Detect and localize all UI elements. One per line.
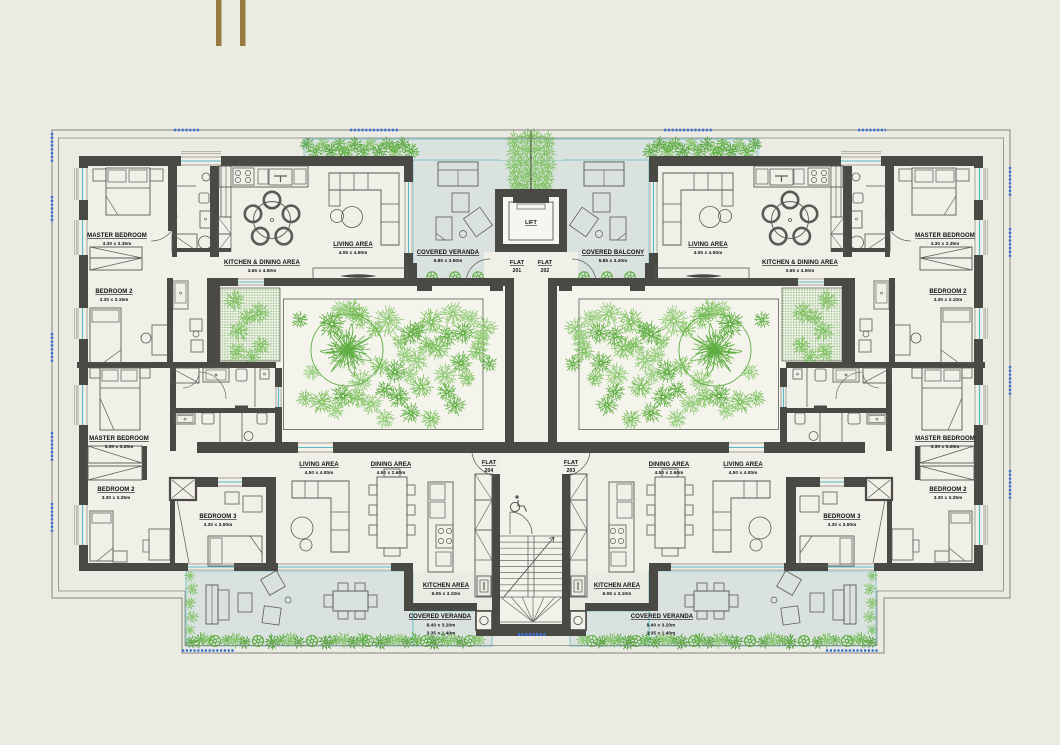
svg-text:3.30 x 3.35m: 3.30 x 3.35m bbox=[931, 241, 960, 246]
svg-text:FLAT: FLAT bbox=[538, 260, 553, 266]
svg-text:LIVING AREA: LIVING AREA bbox=[299, 462, 339, 468]
svg-text:4.50 x 4.00m: 4.50 x 4.00m bbox=[305, 470, 334, 475]
svg-text:3.30 x 3.20m: 3.30 x 3.20m bbox=[931, 444, 960, 449]
svg-text:COVERED BALCONY: COVERED BALCONY bbox=[582, 250, 645, 256]
svg-text:COVERED VERANDA: COVERED VERANDA bbox=[417, 250, 480, 256]
svg-text:3.30 x 3.00m: 3.30 x 3.00m bbox=[204, 522, 233, 527]
svg-text:3.30 x 3.00m: 3.30 x 3.00m bbox=[828, 522, 857, 527]
svg-text:MASTER BEDROOM: MASTER BEDROOM bbox=[915, 436, 975, 442]
svg-text:COVERED VERANDA: COVERED VERANDA bbox=[631, 614, 694, 620]
svg-text:LIVING AREA: LIVING AREA bbox=[723, 462, 763, 468]
svg-text:MASTER BEDROOM: MASTER BEDROOM bbox=[87, 233, 147, 239]
svg-text:COVERED VERANDA: COVERED VERANDA bbox=[409, 614, 472, 620]
svg-text:LIFT: LIFT bbox=[525, 220, 537, 226]
svg-text:KITCHEN & DINING AREA: KITCHEN & DINING AREA bbox=[762, 260, 838, 266]
svg-text:KITCHEN & DINING AREA: KITCHEN & DINING AREA bbox=[224, 260, 300, 266]
svg-text:5.85 x 3.50m: 5.85 x 3.50m bbox=[434, 258, 463, 263]
svg-text:201: 201 bbox=[513, 268, 522, 274]
svg-text:6.05 x 3.10m: 6.05 x 3.10m bbox=[432, 591, 461, 596]
svg-text:FLAT: FLAT bbox=[564, 460, 579, 466]
svg-text:3.30 x 3.35m: 3.30 x 3.35m bbox=[103, 241, 132, 246]
svg-text:BEDROOM 3: BEDROOM 3 bbox=[823, 514, 861, 520]
svg-text:3.30 x 3.15m: 3.30 x 3.15m bbox=[100, 297, 129, 302]
svg-text:BEDROOM 2: BEDROOM 2 bbox=[929, 289, 967, 295]
svg-text:3.65 x 4.50m: 3.65 x 4.50m bbox=[248, 268, 277, 273]
svg-text:3.30 x 3.20m: 3.30 x 3.20m bbox=[105, 444, 134, 449]
svg-text:MASTER BEDROOM: MASTER BEDROOM bbox=[915, 233, 975, 239]
svg-text:8.40 x 3.20m: 8.40 x 3.20m bbox=[427, 623, 456, 628]
svg-text:KITCHEN AREA: KITCHEN AREA bbox=[423, 583, 470, 589]
svg-text:FLAT: FLAT bbox=[482, 460, 497, 466]
svg-text:202: 202 bbox=[541, 268, 550, 274]
svg-text:203: 203 bbox=[567, 468, 576, 474]
svg-text:3.30 x 3.10m: 3.30 x 3.10m bbox=[934, 297, 963, 302]
svg-text:3.35 x 1.40m: 3.35 x 1.40m bbox=[427, 631, 456, 636]
svg-text:3.30 x 3.25m: 3.30 x 3.25m bbox=[102, 495, 131, 500]
svg-text:3.65 x 4.50m: 3.65 x 4.50m bbox=[786, 268, 815, 273]
svg-text:MASTER BEDROOM: MASTER BEDROOM bbox=[89, 436, 149, 442]
svg-text:BEDROOM 2: BEDROOM 2 bbox=[95, 289, 133, 295]
svg-text:DINING AREA: DINING AREA bbox=[371, 462, 412, 468]
svg-text:6.05 x 3.10m: 6.05 x 3.10m bbox=[603, 591, 632, 596]
svg-text:4.50 x 2.60m: 4.50 x 2.60m bbox=[377, 470, 406, 475]
svg-text:BEDROOM 2: BEDROOM 2 bbox=[97, 487, 135, 493]
svg-text:4.05 x 4.50m: 4.05 x 4.50m bbox=[694, 250, 723, 255]
svg-text:FLAT: FLAT bbox=[510, 260, 525, 266]
svg-text:LIVING AREA: LIVING AREA bbox=[688, 242, 728, 248]
svg-text:LIVING AREA: LIVING AREA bbox=[333, 242, 373, 248]
svg-text:3.35 x 1.40m: 3.35 x 1.40m bbox=[647, 631, 676, 636]
svg-text:8.40 x 3.20m: 8.40 x 3.20m bbox=[647, 623, 676, 628]
svg-text:5.85 x 3.20m: 5.85 x 3.20m bbox=[599, 258, 628, 263]
svg-text:KITCHEN AREA: KITCHEN AREA bbox=[594, 583, 641, 589]
svg-text:4.05 x 4.50m: 4.05 x 4.50m bbox=[339, 250, 368, 255]
svg-text:204: 204 bbox=[485, 468, 494, 474]
svg-text:DINING AREA: DINING AREA bbox=[649, 462, 690, 468]
svg-text:3.30 x 3.25m: 3.30 x 3.25m bbox=[934, 495, 963, 500]
svg-text:BEDROOM 3: BEDROOM 3 bbox=[199, 514, 237, 520]
svg-text:4.50 x 2.60m: 4.50 x 2.60m bbox=[655, 470, 684, 475]
svg-text:4.50 x 4.00m: 4.50 x 4.00m bbox=[729, 470, 758, 475]
svg-text:BEDROOM 2: BEDROOM 2 bbox=[929, 487, 967, 493]
